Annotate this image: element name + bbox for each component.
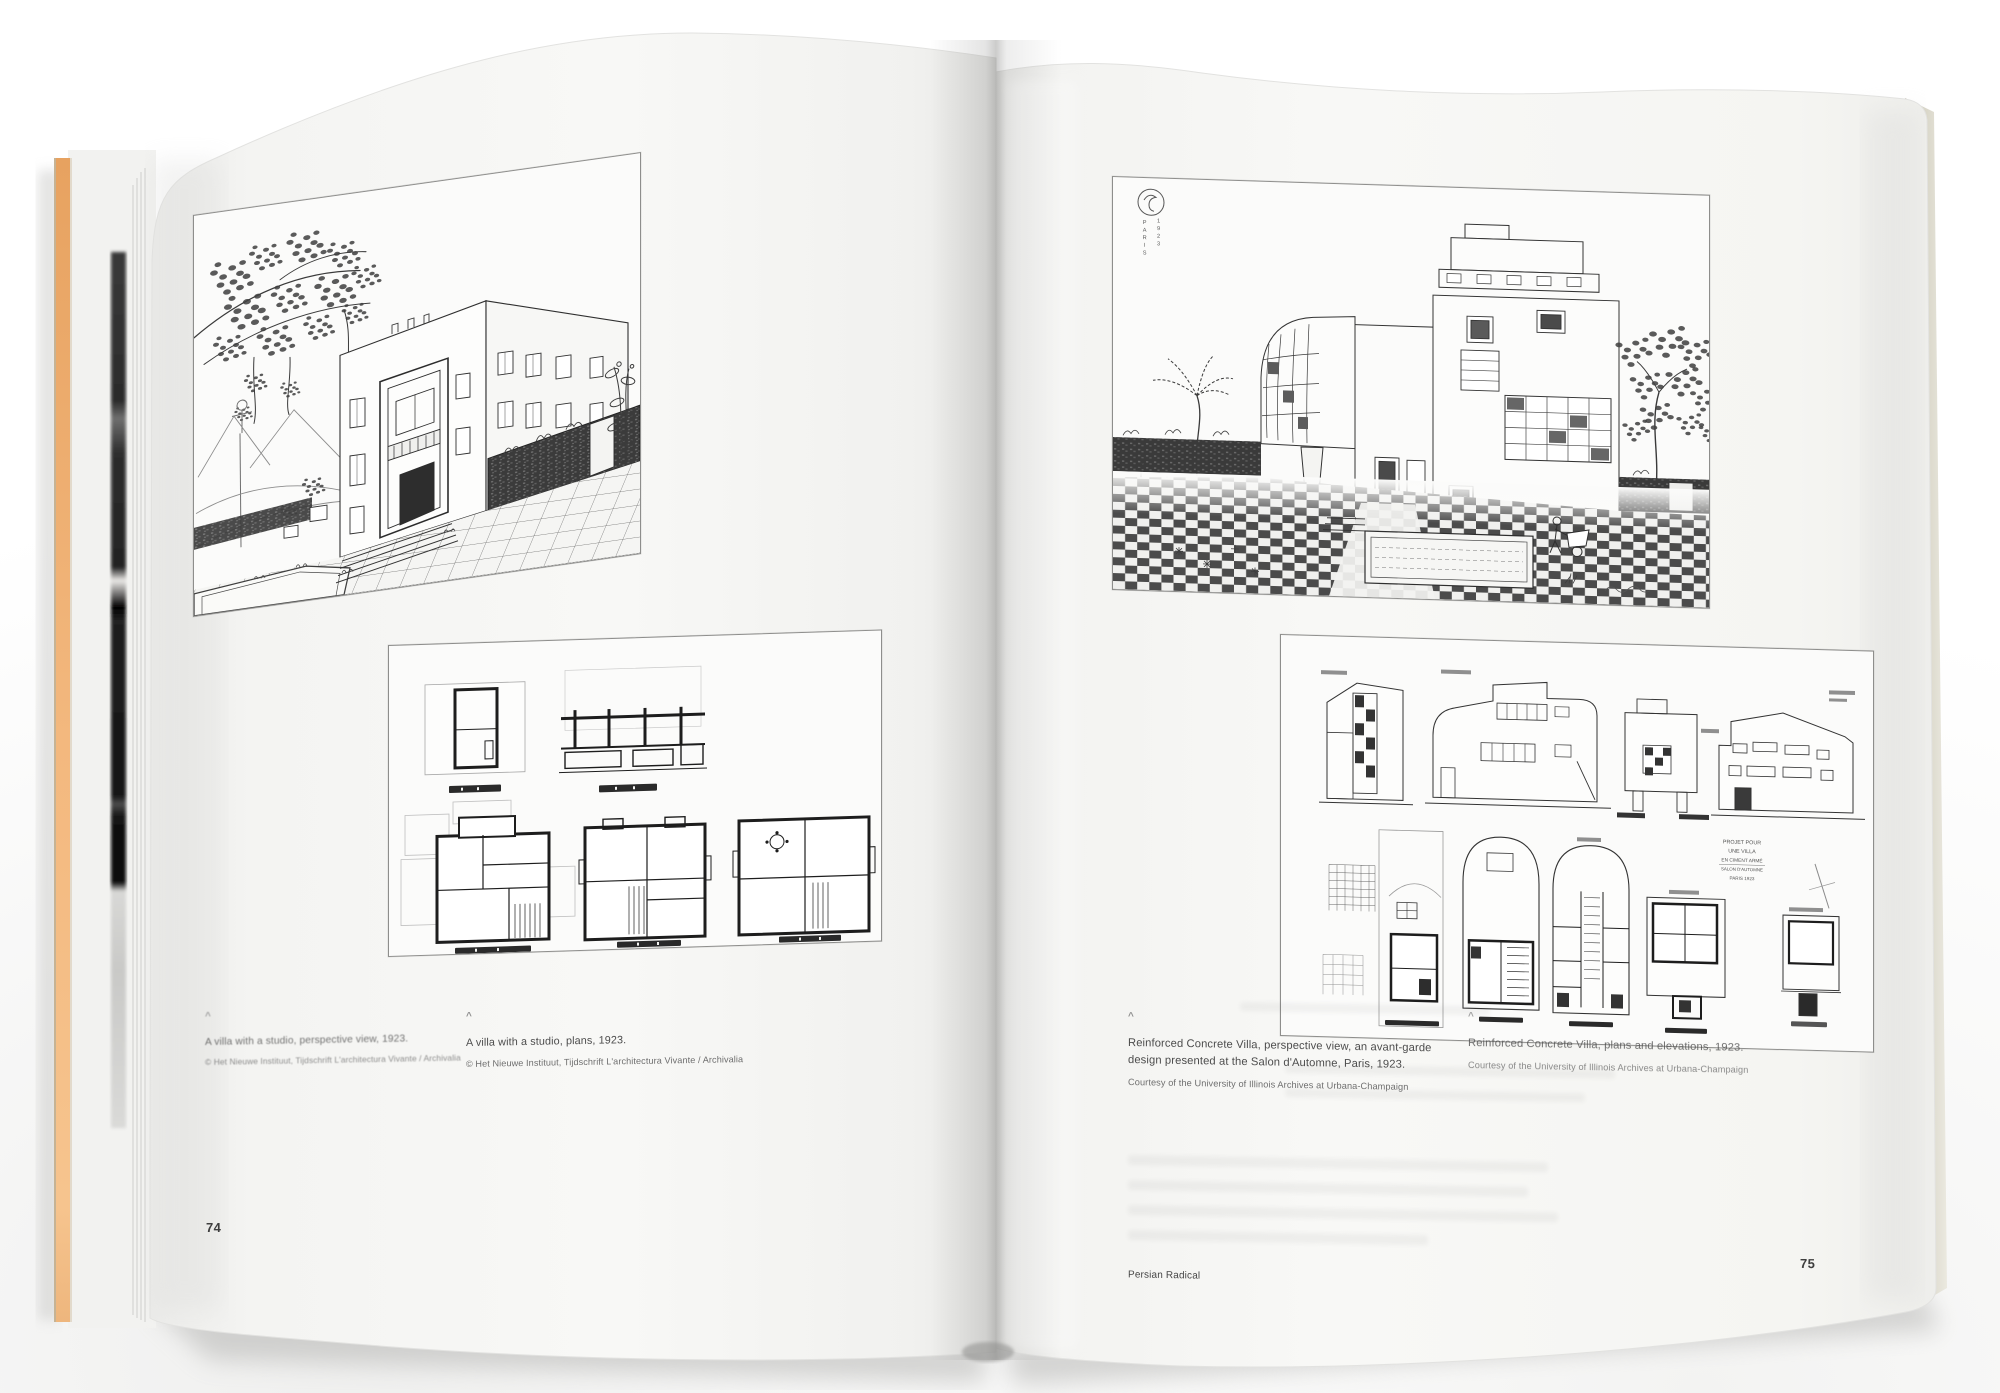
figure-caption: Reinforced Concrete Villa, perspective v… [1128,1035,1462,1074]
left-edge-line [54,158,56,1322]
figure-villa-perspective [193,152,641,617]
figure-villa-plans [388,629,882,957]
gutter-highlight [1008,80,1078,1350]
concrete-villa-plans-drawing: PROJET POUR UNE VILLA EN CIMENT ARMÉ SAL… [1281,635,1873,1052]
checker-terrace [1113,471,1709,608]
svg-text:SALON D'AUTOMNE: SALON D'AUTOMNE [1721,866,1763,872]
svg-text:PROJET POUR: PROJET POUR [1723,839,1761,846]
stamp-text-left: PARIS [1141,220,1147,258]
svg-text:PARIS 1923: PARIS 1923 [1730,876,1755,882]
hedge-left [1113,437,1261,476]
figure-concrete-villa-perspective: PARIS 1923 [1112,176,1710,609]
figure-caption: Reinforced Concrete Villa, plans and ele… [1468,1035,1898,1059]
svg-text:UNE VILLA: UNE VILLA [1728,849,1756,856]
left-edge-line [70,158,72,1322]
caption-block-right-1: ^ Reinforced Concrete Villa, perspective… [1128,1012,1462,1094]
caption-block-left-1: ^ A villa with a studio, perspective vie… [205,1008,455,1069]
concrete-villa-drawing [1113,177,1709,608]
left-edge-orange-strip [56,158,70,1322]
gutter-notch-shadow [962,1342,1014,1362]
caption-block-left-2: ^ A villa with a studio, plans, 1923. © … [466,1007,766,1071]
book-photo: ^ A villa with a studio, perspective vie… [0,0,2000,1393]
villa-plans-drawing [389,631,881,956]
running-footer: Persian Radical [1128,1269,1200,1281]
villa-perspective-drawing [194,153,640,616]
plan-note: PROJET POUR UNE VILLA EN CIMENT ARMÉ SAL… [1719,839,1765,881]
stamp-text-right: 1923 [1155,218,1161,249]
page-number-74: 74 [206,1220,221,1235]
left-edge-photo-sliver [111,252,126,1128]
caption-block-right-2: ^ Reinforced Concrete Villa, plans and e… [1468,1012,1898,1079]
figure-concrete-villa-plans: PROJET POUR UNE VILLA EN CIMENT ARMÉ SAL… [1280,634,1874,1053]
page-number-75: 75 [1800,1256,1815,1271]
figure-caption: A villa with a studio, plans, 1923. [466,1030,766,1051]
svg-text:EN CIMENT ARMÉ: EN CIMENT ARMÉ [1721,856,1762,864]
tree-foliage [1615,324,1709,444]
grid-window [1505,395,1611,462]
publisher-stamp [1138,189,1164,216]
figure-caption: A villa with a studio, perspective view,… [205,1031,455,1051]
